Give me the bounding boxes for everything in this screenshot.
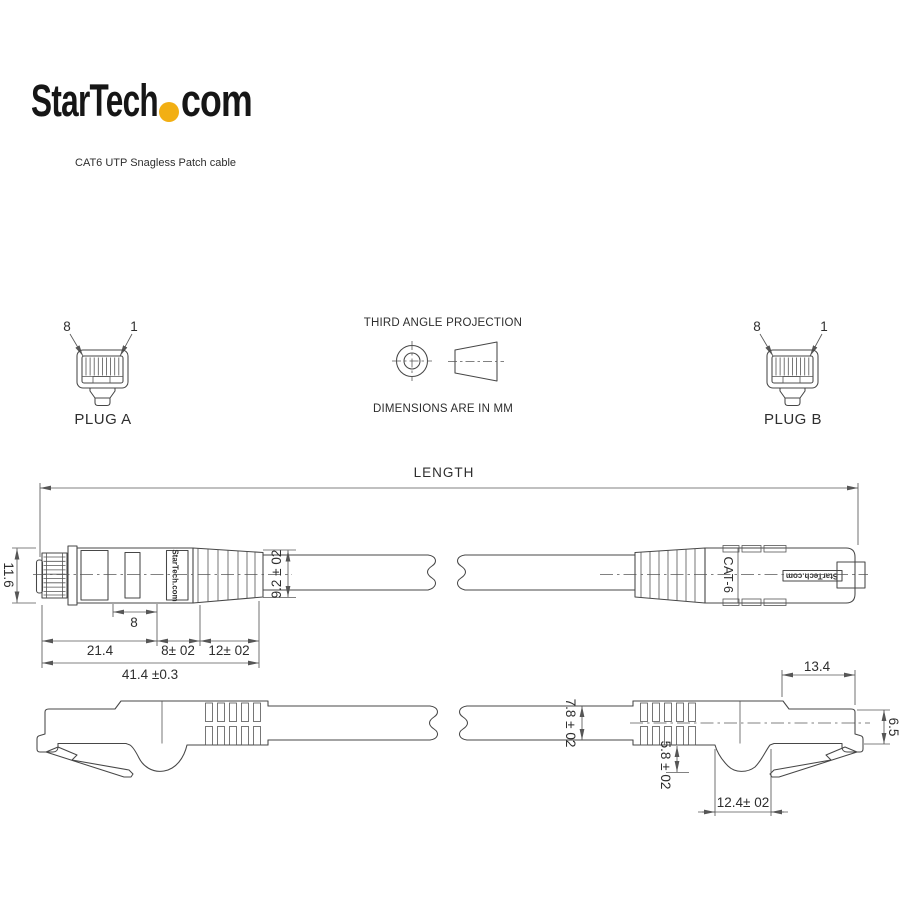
brand-marking-text: StarTech.com — [786, 572, 838, 581]
boot-ribs — [641, 549, 695, 603]
plug-flange — [68, 546, 77, 605]
dim-8-value: 8 — [130, 615, 138, 630]
boot-ribs — [198, 548, 255, 602]
dim-6-5-extensions — [857, 710, 890, 744]
cable-break-icon — [460, 706, 468, 740]
plug-b-caption: PLUG B — [764, 411, 822, 428]
plug-b-contact-pins — [772, 358, 813, 377]
plug-a-contact-pins — [82, 358, 123, 377]
dim-11-6-value: 11.6 — [1, 562, 16, 587]
brand-marking-text: StarTech.com — [171, 549, 180, 601]
side-view-dimensions: 7.8 ± 02 13.4 6.5 5.8 ± 02 12.4± 02 — [563, 659, 900, 816]
top-view-left-plug: StarTech.com — [33, 546, 292, 605]
boot-rib-slots — [206, 703, 261, 745]
plug-bottom-outline-with-bump — [58, 744, 268, 772]
projection-cone-symbol — [448, 342, 504, 381]
logo-text-startech: StarTech — [31, 75, 158, 126]
length-dimension: LENGTH — [40, 465, 858, 557]
cat6-marking-text: CAT-6 — [721, 557, 735, 594]
housing-window-1 — [81, 551, 108, 601]
cable-right-segment — [465, 555, 635, 590]
plug-front-and-latch-base — [37, 709, 58, 752]
plug-b-pin1-label: 1 — [820, 319, 828, 334]
projection-circle-symbol — [392, 341, 432, 381]
plug-a-pin8-leader — [70, 334, 83, 356]
dim-12-02-value: 12± 02 — [208, 643, 249, 658]
dim-6-5-value: 6.5 — [886, 718, 900, 737]
dim-13-4-value: 13.4 — [804, 659, 831, 674]
plug-a-latch-slot — [93, 377, 110, 384]
top-view-dimensions: 11.6 9.2 ± 02 8 21.4 8± 02 12± 02 41.4 ±… — [1, 548, 296, 682]
dim-5-8-value: 5.8 ± 02 — [658, 741, 673, 790]
dim-21-4-value: 21.4 — [87, 643, 114, 658]
plug-b-pin8-leader — [760, 334, 773, 356]
cable-break-icon — [430, 706, 438, 740]
logo-text-com: com — [181, 75, 252, 126]
boot-rib-slots — [641, 703, 696, 745]
cable-break-icon — [458, 555, 466, 590]
plug-top-outline — [49, 701, 268, 745]
plug-b-latch-slot — [783, 377, 800, 384]
dim-9-2-value: 9.2 ± 02 — [269, 550, 284, 599]
plug-a-boot-funnel — [90, 388, 115, 398]
plug-tip — [837, 562, 865, 588]
top-view-right-plug: CAT-6 StarTech.com — [600, 546, 868, 606]
plug-b-boot-funnel — [780, 388, 805, 398]
housing-window-2 — [125, 553, 140, 599]
drawing-subtitle: CAT6 UTP Snagless Patch cable — [75, 157, 236, 169]
plug-a-front-view: 8 1 PLUG A — [63, 319, 138, 428]
plug-b-cable-stub — [785, 398, 800, 406]
dim-12-4-value: 12.4± 02 — [717, 795, 769, 810]
top-view-cable — [263, 555, 635, 590]
drawing-sheet: StarTech com CAT6 UTP Snagless Patch cab… — [0, 0, 900, 900]
dim-41-4-value: 41.4 ±0.3 — [122, 667, 178, 682]
side-view-left-plug — [37, 701, 268, 777]
plug-a-pin1-label: 1 — [130, 319, 138, 334]
plug-a-pin1-leader — [120, 334, 132, 356]
projection-title: THIRD ANGLE PROJECTION — [364, 317, 522, 329]
plug-a-caption: PLUG A — [74, 411, 131, 428]
strain-relief-boot — [635, 548, 705, 603]
brand-logo: StarTech com CAT6 UTP Snagless Patch cab… — [31, 75, 252, 169]
cat6-cable-technical-drawing: StarTech com CAT6 UTP Snagless Patch cab… — [0, 0, 900, 900]
third-angle-projection: THIRD ANGLE PROJECTION DIMENSIONS ARE IN… — [364, 317, 522, 415]
plug-b-front-view: 8 1 PLUG B — [753, 319, 828, 428]
units-note: DIMENSIONS ARE IN MM — [373, 403, 513, 415]
dim-8-02-value: 8± 02 — [161, 643, 195, 658]
cable-left-segment — [268, 706, 430, 740]
plug-b-pin1-leader — [810, 334, 822, 356]
length-label: LENGTH — [414, 465, 475, 480]
plug-b-pin8-label: 8 — [753, 319, 761, 334]
logo-dot-icon — [159, 102, 179, 122]
plug-a-pin8-label: 8 — [63, 319, 71, 334]
cable-right-segment — [467, 706, 633, 740]
plug-a-cable-stub — [95, 398, 110, 406]
contact-block-stripes — [44, 553, 66, 598]
dim-7-8-value: 7.8 ± 02 — [563, 699, 578, 748]
latch-arm — [46, 747, 133, 777]
cable-break-icon — [428, 555, 436, 590]
